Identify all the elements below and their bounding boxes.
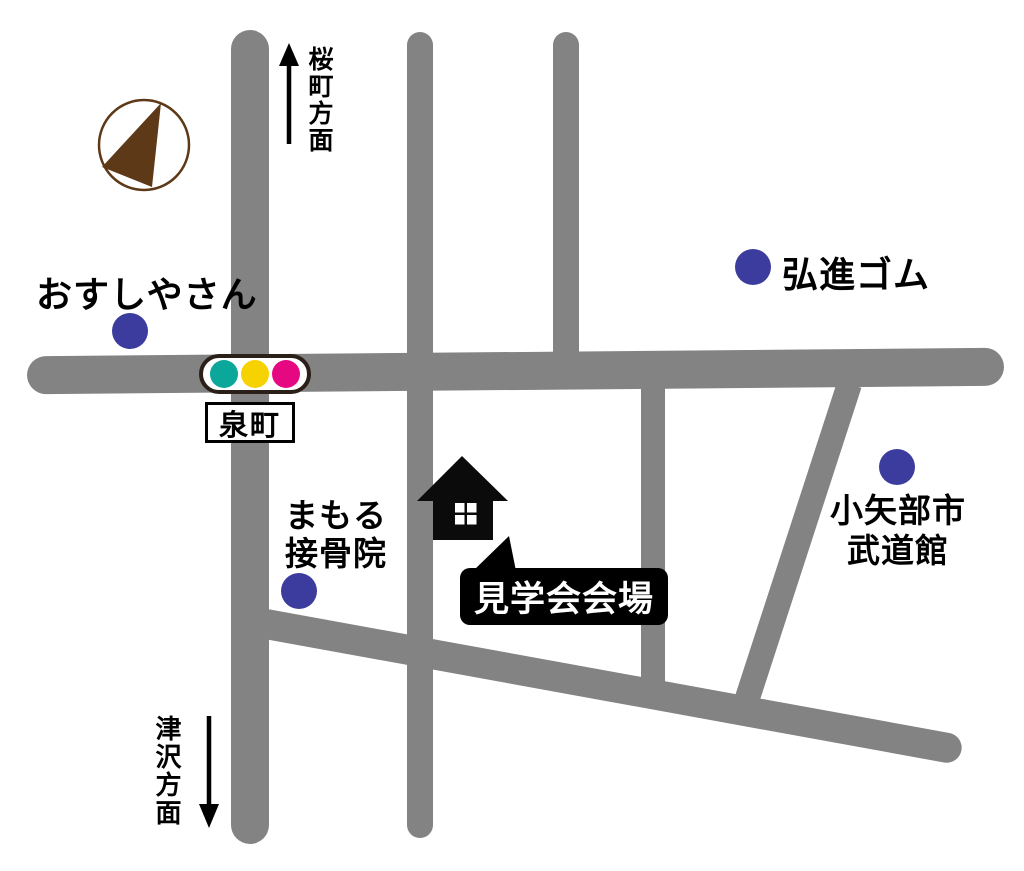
intersection-name-box: 泉町 xyxy=(205,402,295,443)
arrow-up-icon xyxy=(276,40,302,148)
venue-label: 見学会会場 xyxy=(460,568,668,625)
direction-north-label: 桜町方面 xyxy=(301,46,337,154)
landmark-dot-sushi xyxy=(112,313,148,349)
road-vertical-sub xyxy=(641,358,665,706)
landmark-dot-budokan xyxy=(879,449,915,485)
landmark-label-koshin-gomu: 弘進ゴム xyxy=(782,246,930,298)
road-vertical-third xyxy=(553,32,579,378)
road-vertical-second xyxy=(407,32,433,838)
traffic-lamp-pink xyxy=(272,360,300,388)
road-diagonal-long xyxy=(238,605,965,766)
arrow-down-icon xyxy=(196,712,222,832)
landmark-dot-koshin-gomu xyxy=(735,249,771,285)
access-map: 桜町方面 津沢方面 おすしやさん 弘進ゴム まもる 接骨院 小矢部市 武道館 泉… xyxy=(0,0,1024,871)
compass-icon xyxy=(97,98,191,192)
landmark-label-mamoru-clinic: まもる 接骨院 xyxy=(285,497,387,573)
traffic-light-icon xyxy=(199,354,311,394)
landmark-dot-mamoru-clinic xyxy=(281,573,317,609)
direction-south-label: 津沢方面 xyxy=(149,715,186,827)
traffic-lamp-teal xyxy=(210,360,238,388)
house-icon xyxy=(415,450,510,542)
landmark-label-sushi: おすしやさん xyxy=(36,266,258,318)
venue-callout-tail xyxy=(470,534,522,572)
landmark-label-budokan: 小矢部市 武道館 xyxy=(826,491,970,571)
traffic-lamp-yellow xyxy=(241,360,269,388)
